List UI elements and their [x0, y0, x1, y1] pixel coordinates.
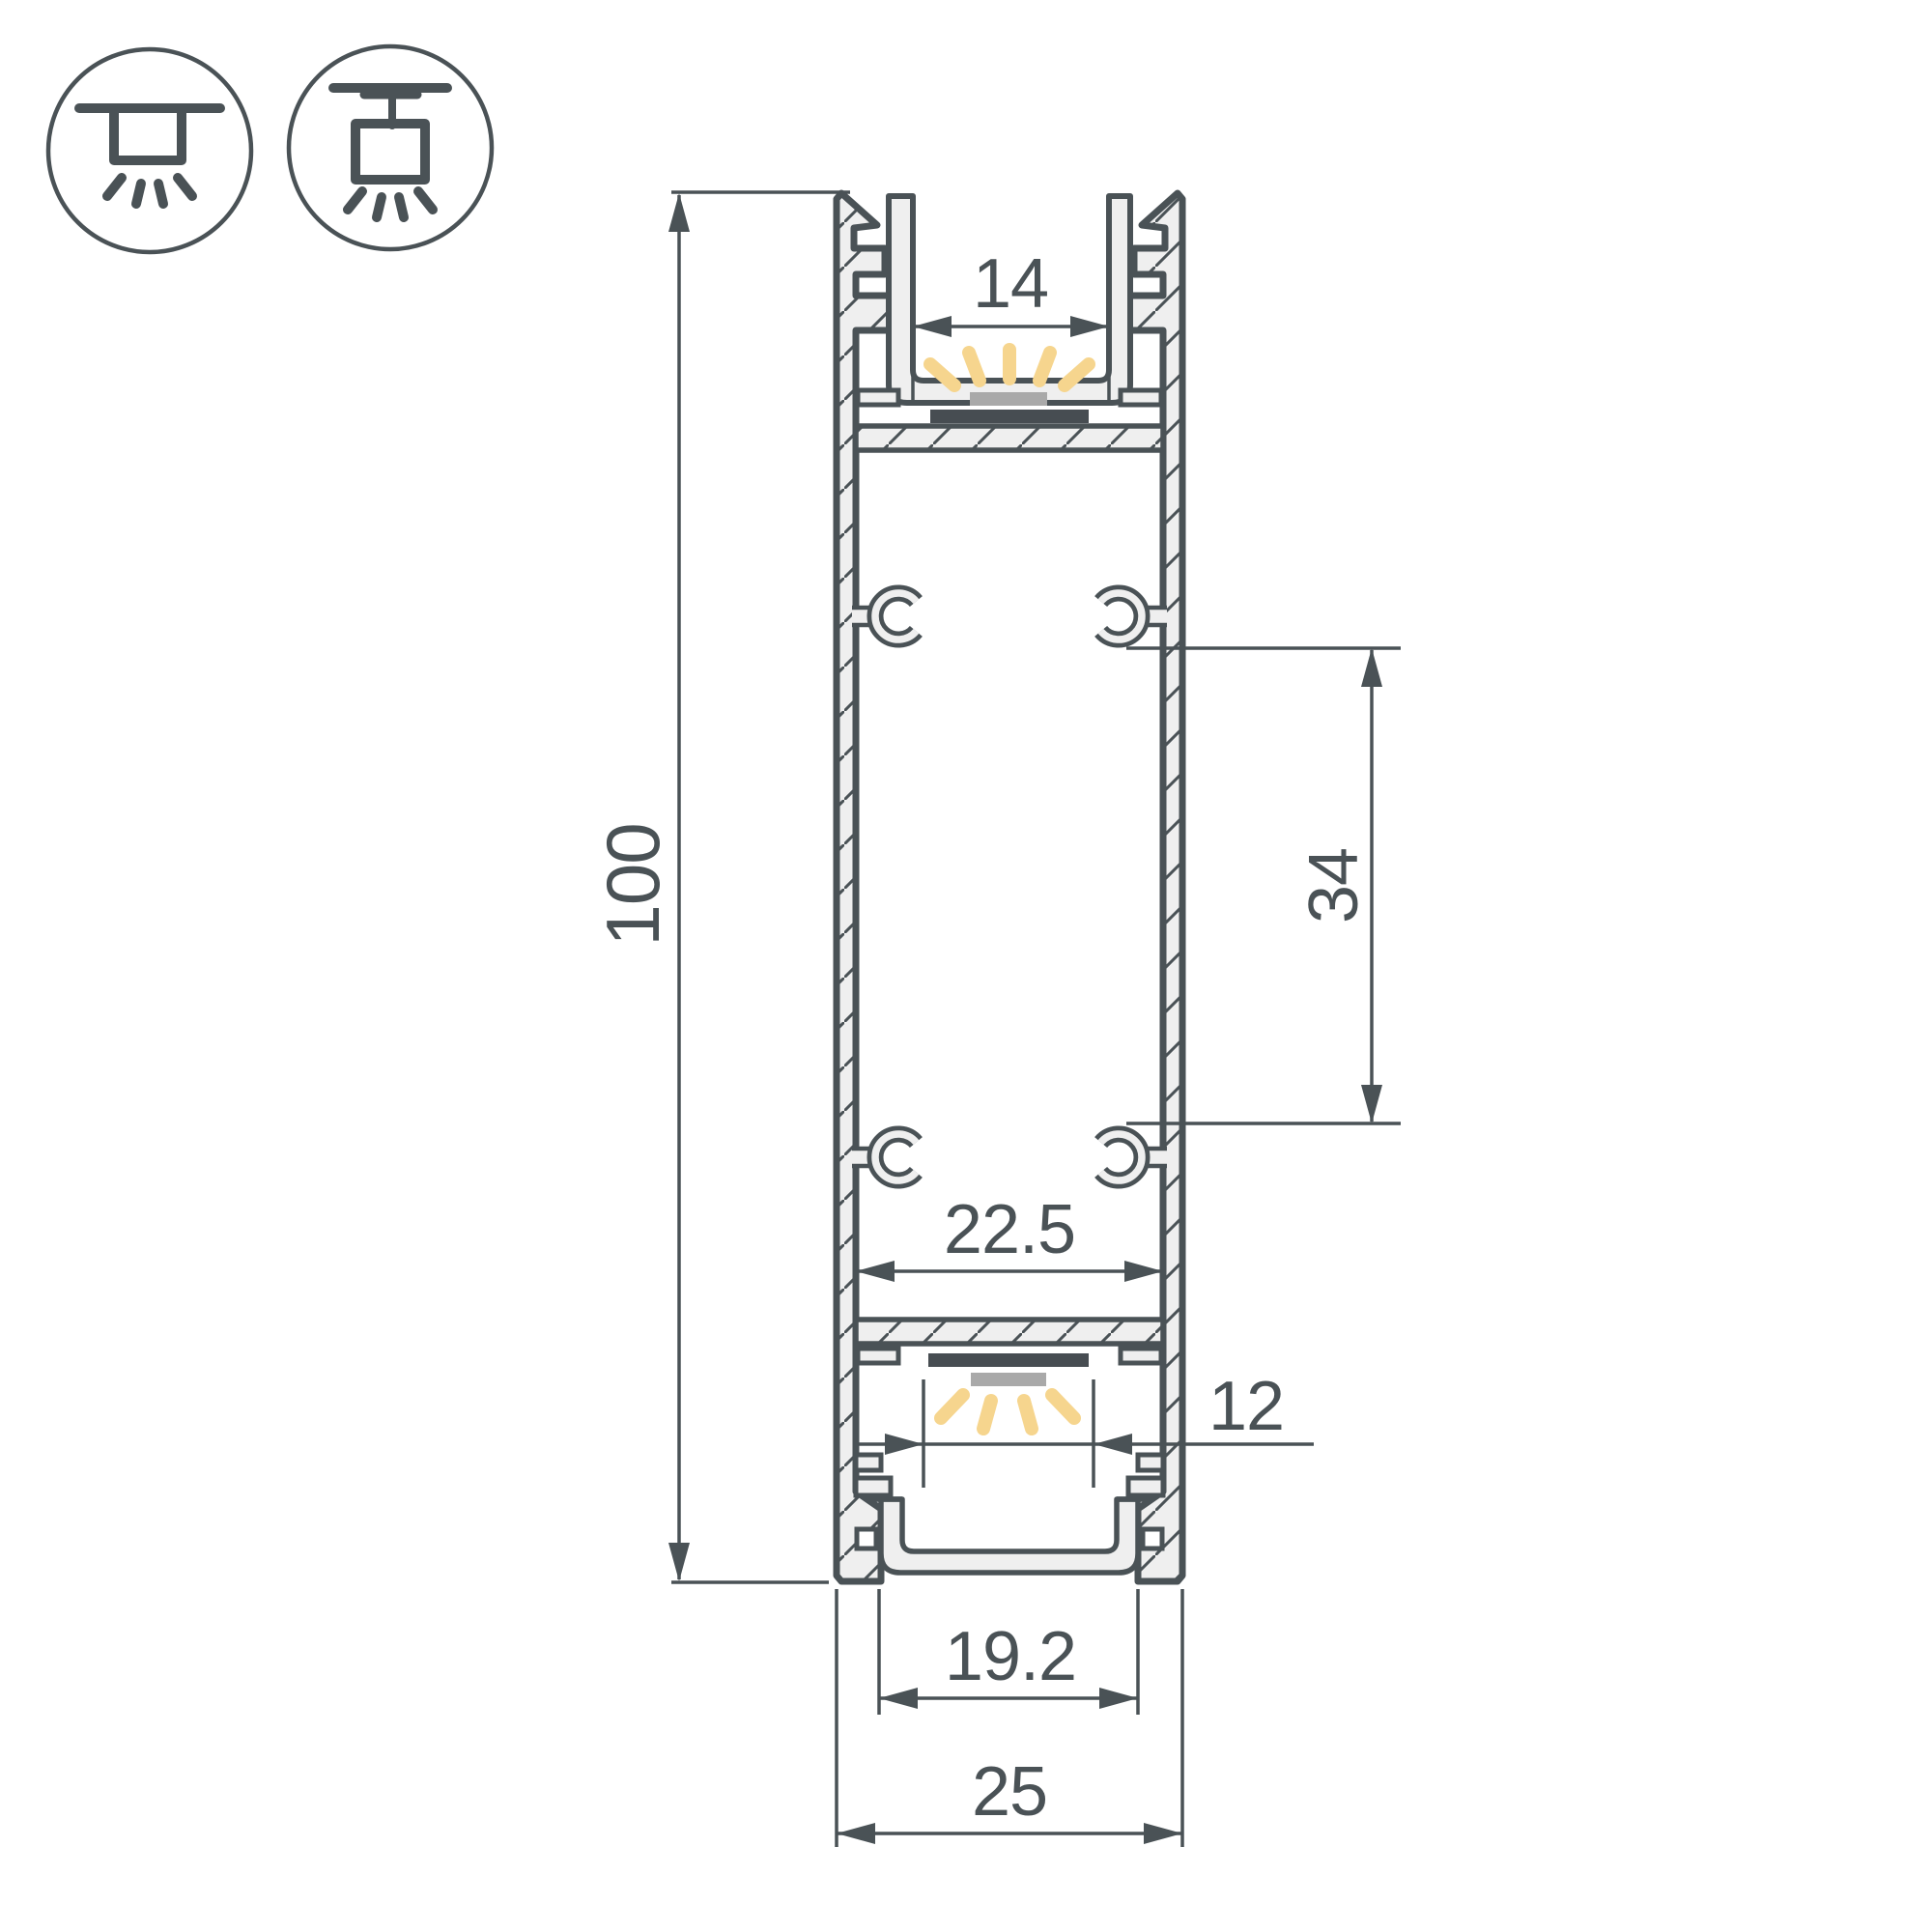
bottom-partition	[856, 1320, 1163, 1344]
light-rays-icon	[348, 191, 433, 217]
dim-label-overall-height: 100	[590, 823, 675, 946]
foot-notch-left	[857, 1529, 876, 1548]
bottom-led-strip	[928, 1353, 1089, 1367]
dim-label-top-window: 14	[973, 245, 1048, 323]
dimension-overall-height: 100	[590, 192, 850, 1582]
recessed-box	[114, 108, 182, 160]
bottom-cover-clip-right	[1121, 1349, 1161, 1363]
top-led-module	[970, 392, 1047, 406]
surface-box	[355, 124, 425, 180]
screw-boss	[852, 1134, 916, 1180]
bottom-diffuser-tray	[881, 1499, 1138, 1573]
dim-label-overall-width: 25	[972, 1753, 1047, 1831]
fixing-screw-bosses	[852, 593, 1167, 1180]
top-cover-clip-left	[858, 390, 898, 405]
top-led-channel	[856, 196, 1163, 450]
light-rays-icon	[107, 178, 192, 204]
bottom-led-module	[971, 1373, 1046, 1386]
profile-body	[837, 193, 1182, 1581]
recessed-mount-icon	[48, 49, 251, 252]
dimension-inner-width: 22.5	[856, 1191, 1163, 1282]
screw-boss	[1101, 593, 1167, 639]
top-light-rays	[930, 350, 1089, 385]
screw-boss	[1101, 1134, 1167, 1180]
bottom-light-rays	[941, 1395, 1074, 1429]
foot-notch-right	[1143, 1529, 1162, 1548]
screw-boss	[852, 593, 916, 639]
dim-label-bottom-window: 12	[1208, 1368, 1284, 1445]
bottom-cover-clip-left	[858, 1349, 898, 1363]
dim-label-bottom-opening: 19.2	[945, 1618, 1076, 1695]
top-led-strip	[930, 410, 1089, 423]
dim-label-inner-width: 22.5	[944, 1191, 1075, 1268]
top-cover-clip-right	[1121, 390, 1161, 405]
dimension-bottom-opening: 19.2	[879, 1589, 1138, 1715]
mounting-type-icons	[48, 46, 492, 252]
icon-circle	[48, 49, 251, 252]
top-partition	[856, 426, 1163, 450]
profile-drawing-page: 100 14 34 22.5	[0, 0, 1932, 1932]
surface-mount-icon	[289, 46, 492, 249]
profile-cross-section-drawing: 100 14 34 22.5	[0, 0, 1932, 1932]
dim-label-boss-spacing: 34	[1295, 848, 1373, 923]
diffuser-clip-steps	[856, 1455, 1163, 1495]
dimension-bottom-window: 12	[858, 1368, 1314, 1488]
icon-circle	[289, 46, 492, 249]
